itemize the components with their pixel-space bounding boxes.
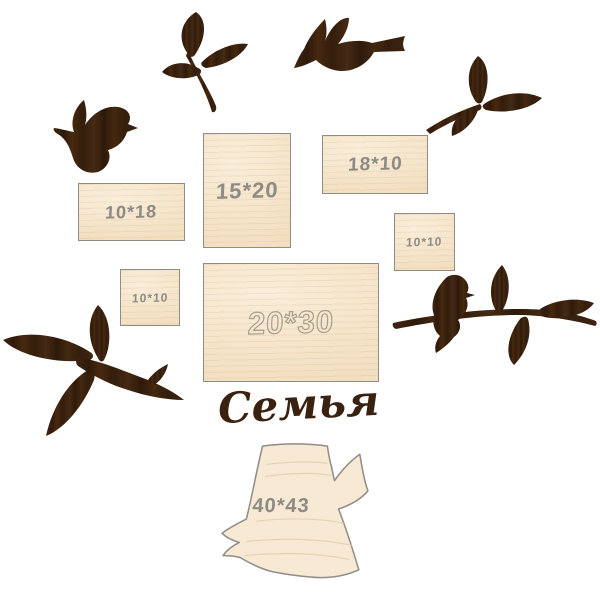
bird-on-branch-icon bbox=[390, 257, 600, 372]
leaf-sprig-icon bbox=[424, 52, 546, 152]
photo-frame-10x18: 10*18 bbox=[78, 183, 185, 241]
photo-frame-20x30: 20*30 bbox=[203, 263, 379, 382]
photo-frame-15x20: 15*20 bbox=[203, 133, 291, 248]
leaf-twig-icon bbox=[158, 10, 253, 115]
tree-trunk-shape: 40*43 bbox=[220, 442, 372, 579]
frame-size-label: 10*18 bbox=[105, 201, 158, 223]
photo-frame-10x10-left: 10*10 bbox=[120, 269, 180, 326]
product-image: 10*18 15*20 18*10 10*10 10*10 20*30 Семь… bbox=[0, 0, 600, 600]
photo-frame-18x10: 18*10 bbox=[322, 135, 428, 194]
frame-size-label: 20*30 bbox=[247, 303, 335, 341]
photo-frame-10x10-right: 10*10 bbox=[394, 213, 455, 271]
family-title: Семья bbox=[217, 376, 379, 434]
flying-bird-icon bbox=[50, 98, 142, 178]
frame-size-label: 15*20 bbox=[215, 177, 279, 205]
frame-size-label: 10*10 bbox=[131, 290, 168, 305]
frame-size-label: 18*10 bbox=[347, 153, 403, 176]
flying-bird-icon bbox=[292, 16, 408, 88]
trunk-size-label: 40*43 bbox=[237, 495, 325, 518]
frame-size-label: 10*10 bbox=[406, 235, 443, 250]
